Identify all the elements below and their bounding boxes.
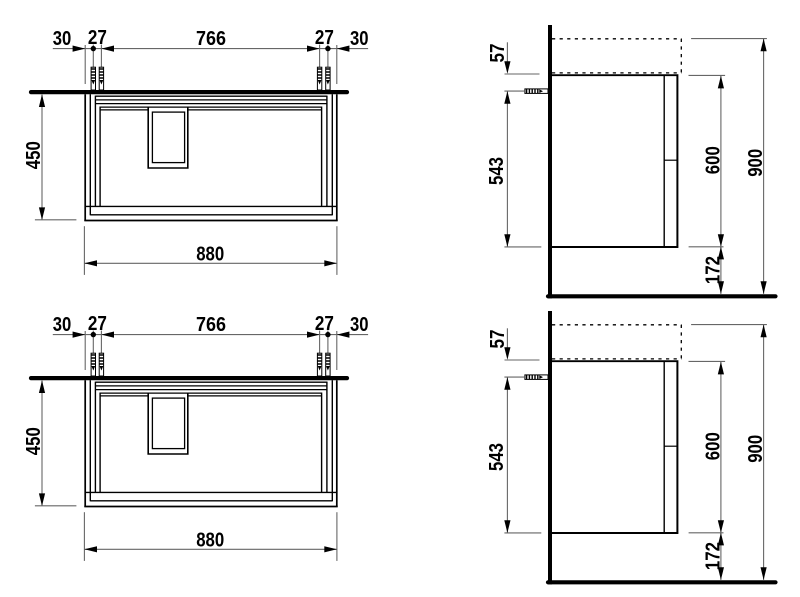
svg-text:450: 450 [23, 141, 45, 169]
svg-text:172: 172 [702, 542, 724, 570]
svg-text:600: 600 [702, 146, 724, 174]
svg-text:57: 57 [487, 330, 509, 349]
svg-text:600: 600 [702, 432, 724, 460]
svg-text:900: 900 [745, 435, 767, 463]
svg-text:880: 880 [196, 530, 224, 552]
svg-text:27: 27 [315, 313, 334, 335]
svg-text:900: 900 [745, 149, 767, 177]
svg-text:30: 30 [53, 314, 72, 336]
svg-text:543: 543 [486, 157, 508, 185]
svg-text:30: 30 [350, 314, 369, 336]
svg-text:27: 27 [88, 27, 107, 49]
svg-text:27: 27 [88, 313, 107, 335]
svg-text:57: 57 [487, 44, 509, 63]
svg-text:30: 30 [350, 28, 369, 50]
svg-text:450: 450 [23, 427, 45, 455]
svg-text:880: 880 [196, 244, 224, 266]
svg-text:30: 30 [53, 28, 72, 50]
svg-text:766: 766 [196, 314, 226, 336]
svg-text:766: 766 [196, 28, 226, 50]
svg-text:543: 543 [486, 443, 508, 471]
svg-text:172: 172 [702, 256, 724, 284]
svg-text:27: 27 [315, 27, 334, 49]
